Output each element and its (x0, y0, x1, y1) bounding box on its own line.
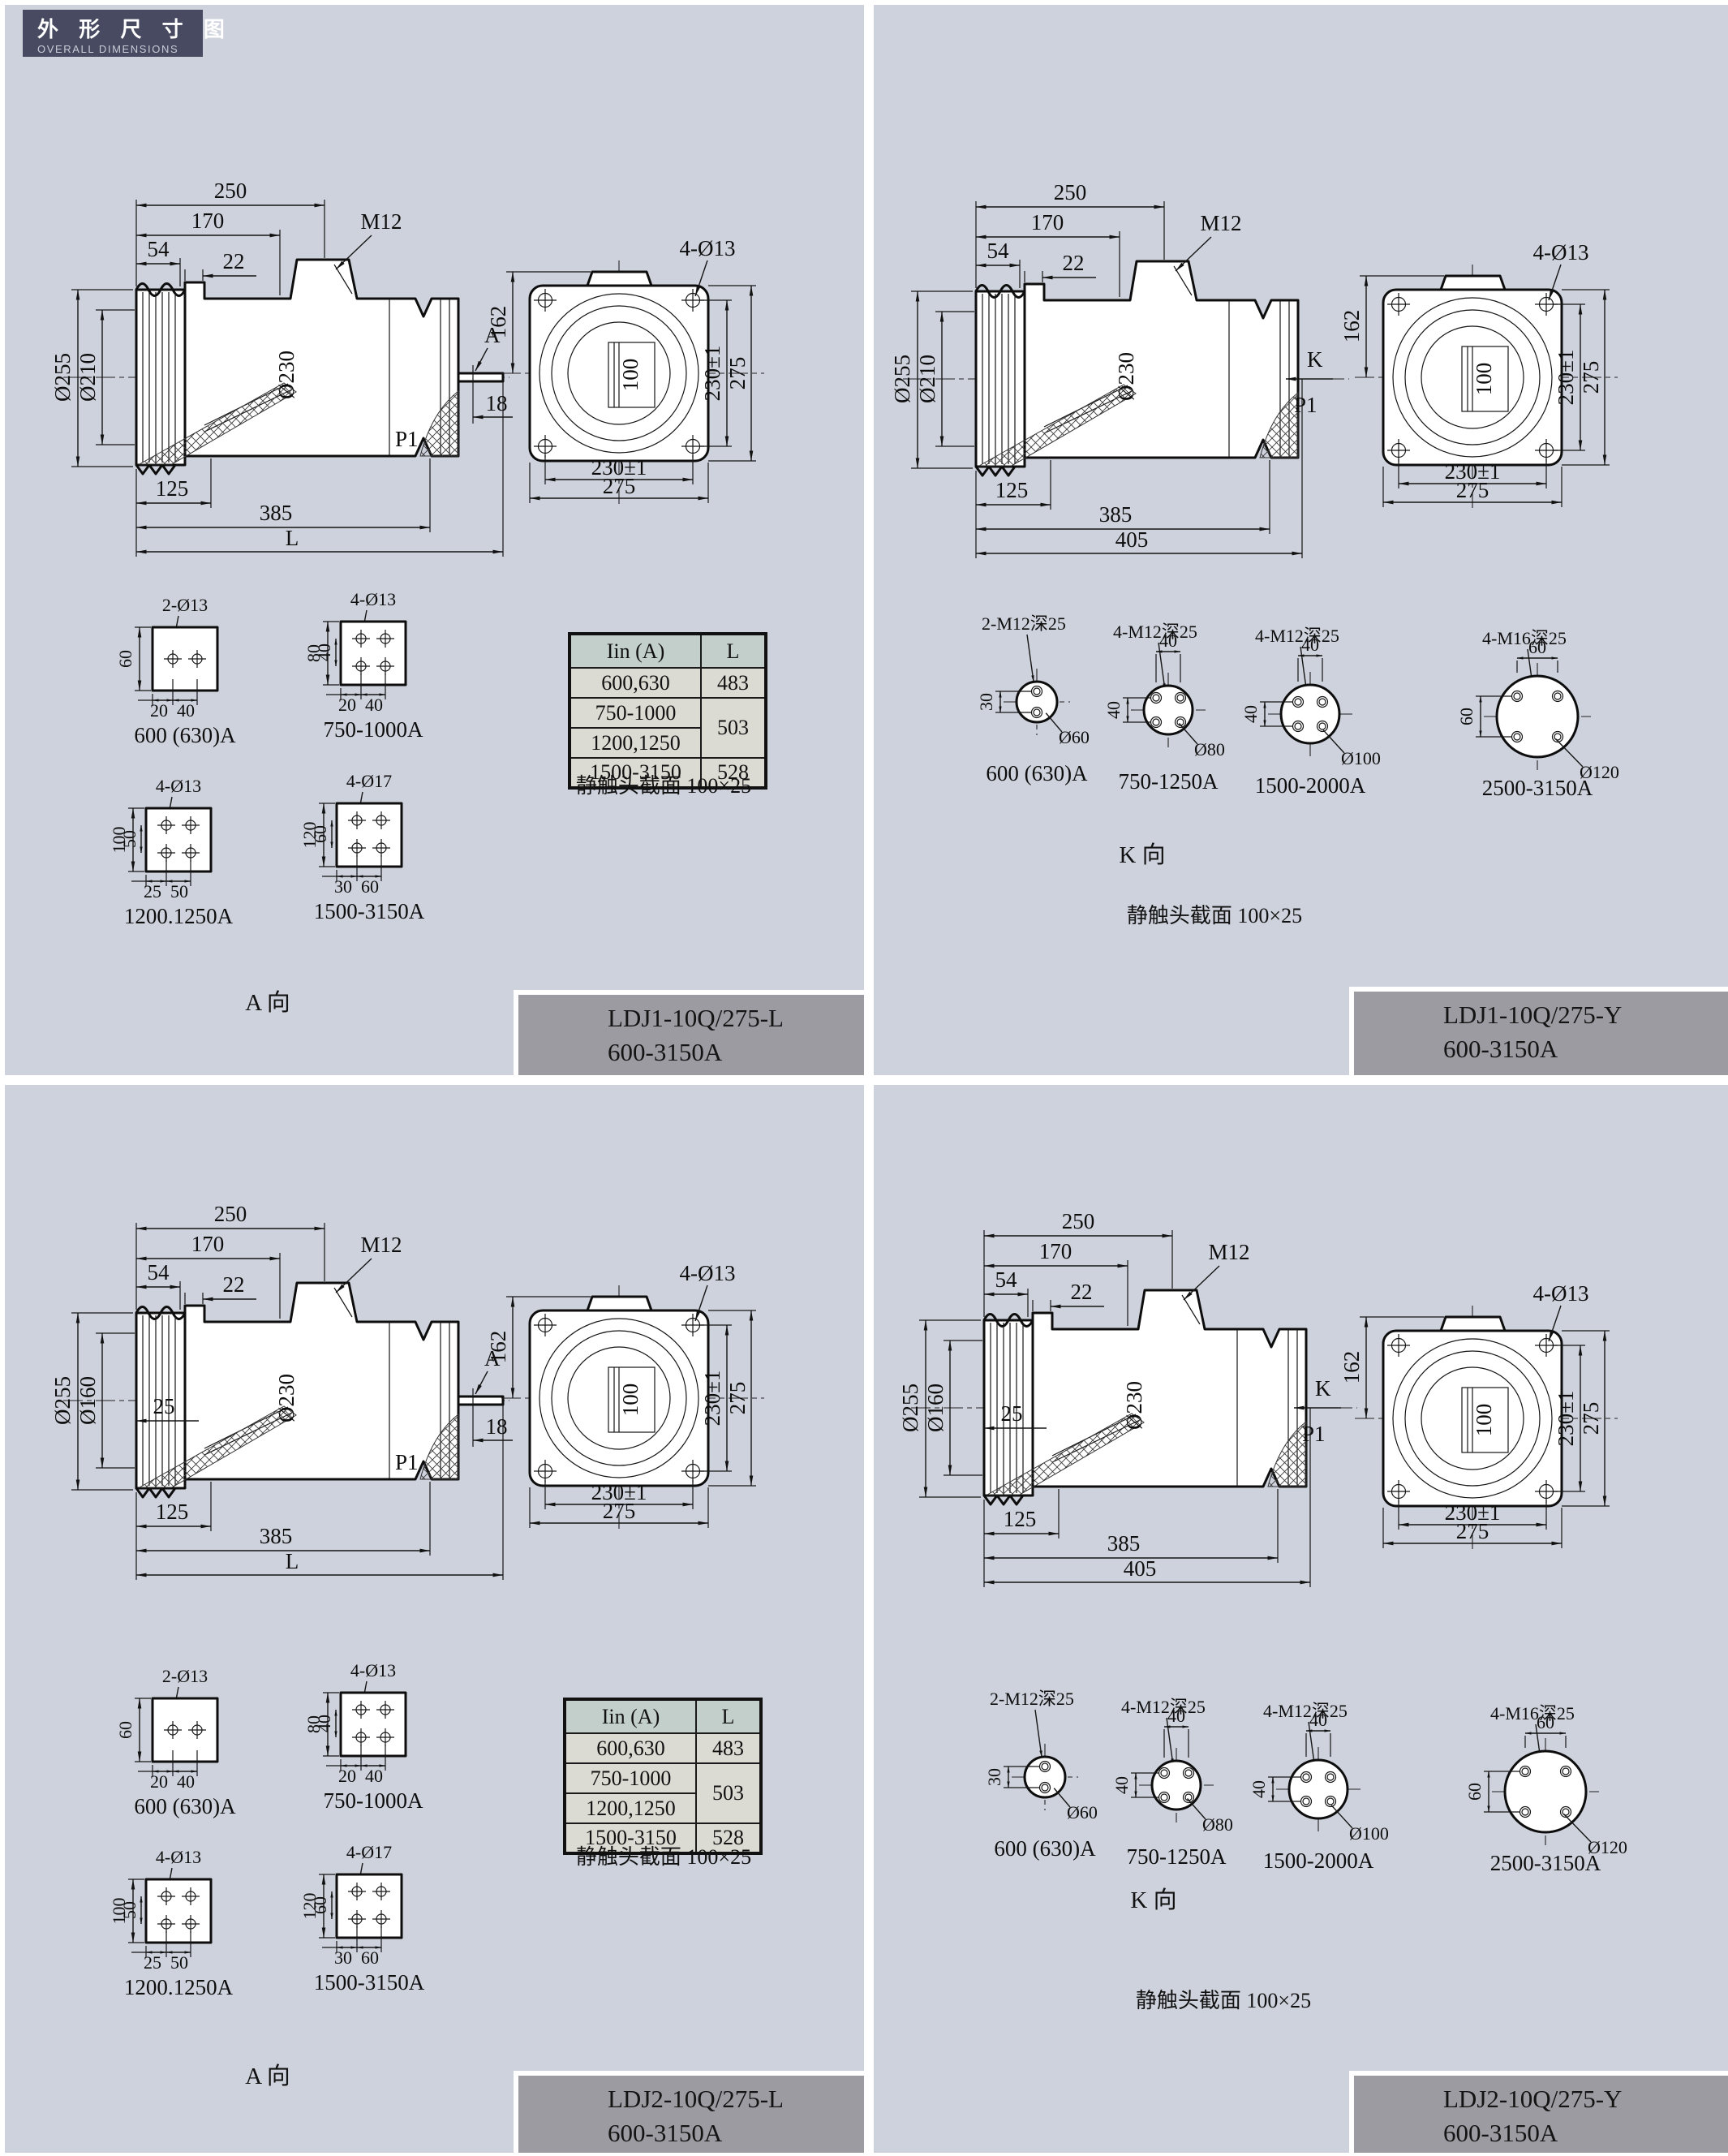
dim-275-right: 275 (1579, 1402, 1603, 1435)
thread-label-m12: M12 (1208, 1240, 1249, 1264)
pattern-title: 4-Ø13 (350, 1660, 396, 1680)
dim-left: 60 (1464, 1783, 1485, 1801)
dim-54: 54 (148, 1260, 170, 1285)
front-view-host-tl: 100 162 4-Ø13 230±1 275 230±1 275 (495, 239, 771, 511)
dim-left: 40 (1240, 705, 1261, 723)
view-caption-a: A 向 (245, 2057, 290, 2091)
table-cell: 600,630 (565, 1733, 696, 1763)
table-cell: 1200,1250 (570, 728, 701, 758)
table-cell: 1200,1250 (565, 1793, 696, 1823)
circle-pattern-host: 4-M12深25 40 40 Ø80 750-1250A (1095, 1700, 1257, 1870)
dim-170: 170 (191, 1232, 225, 1256)
pattern-current-label: 600 (630)A (134, 723, 236, 747)
dim-162: 162 (1339, 310, 1364, 343)
dim-bot1: 20 (338, 695, 356, 715)
dim-dia-body: Ø230 (274, 351, 299, 399)
dim-54: 54 (148, 237, 170, 261)
dim-outer-v: 60 (115, 650, 135, 668)
dim-dia: Ø60 (1059, 727, 1090, 747)
dim-230-right: 230±1 (1554, 1391, 1578, 1447)
diameter-label: Ø100 (1323, 730, 1381, 768)
bolt-pattern-plate: 4-Ø13 40 80 20 40 750-1000A (292, 1662, 434, 1828)
dim-230-right: 230±1 (700, 346, 724, 402)
holes-label: 4-Ø13 (680, 236, 736, 260)
pattern-current-label: 2500-3150A (1490, 1851, 1601, 1875)
model-name: LDJ2-10Q/275-Y (1443, 2082, 1728, 2116)
dim-250: 250 (1062, 1209, 1095, 1233)
dim-bot1: 30 (334, 876, 352, 897)
circle-pattern-host: 4-M12深25 40 40 Ø80 750-1250A (1087, 625, 1249, 795)
dim-top: 40 (1167, 1706, 1185, 1726)
model-name: LDJ1-10Q/275-Y (1443, 998, 1728, 1032)
contact-circle (1505, 1751, 1586, 1832)
bolt-pattern-host: 4-Ø13 50 100 25 50 1200.1250A (97, 1848, 239, 2015)
dim-outer-v: 100 (109, 827, 129, 854)
plate-outline (341, 622, 406, 685)
static-contact-note: 静触头截面 100×25 (1127, 899, 1302, 929)
diameter-label: Ø100 (1331, 1805, 1389, 1844)
pattern-current-label: 750-1250A (1119, 769, 1219, 794)
dim-162: 162 (1339, 1351, 1364, 1384)
dim-top: 40 (1159, 630, 1177, 651)
dim-dia-inner: Ø160 (923, 1384, 948, 1432)
pattern-current-label: 1500-3150A (314, 1970, 425, 1995)
dim-250: 250 (1054, 180, 1087, 204)
side-view-drawing: 250 170 54 22 M12 Ø255 Ø160 Ø230 25 125 … (896, 1128, 1367, 1594)
dim-22: 22 (1071, 1280, 1093, 1304)
dim-275-bottom: 275 (603, 1499, 636, 1523)
dim-275-bottom: 275 (1456, 478, 1489, 502)
dim-bot1: 20 (150, 1771, 168, 1792)
dim-22: 22 (1063, 251, 1085, 275)
front-view-host-bl: 100 162 4-Ø13 230±1 275 230±1 275 (495, 1264, 771, 1536)
pattern-current-label: 2500-3150A (1482, 776, 1593, 800)
dim-22: 22 (223, 1272, 245, 1297)
table-cell: 600,630 (570, 668, 701, 698)
contact-circle (1289, 1760, 1348, 1818)
dim-100: 100 (1472, 363, 1496, 396)
dim-275-right: 275 (725, 357, 750, 390)
plane-p1: P1 (1294, 393, 1317, 417)
plate-outline (341, 1693, 406, 1756)
model-label-bl: LDJ2-10Q/275-L 600-3150A (514, 2071, 864, 2153)
dim-left: 40 (1103, 701, 1124, 719)
dim-100: 100 (618, 1384, 643, 1417)
pattern-current-label: 750-1250A (1127, 1844, 1227, 1869)
bolt-pattern-host: 4-Ø17 60 120 30 60 1500-3150A (288, 1844, 430, 2010)
pattern-title: 4-Ø13 (156, 1847, 201, 1867)
dimension-table: Iin (A) L 600,630483 750-1000503 1200,12… (568, 632, 767, 790)
model-range: 600-3150A (608, 2116, 864, 2150)
pattern-current-label: 600 (630)A (134, 1794, 236, 1818)
model-label-br: LDJ2-10Q/275-Y 600-3150A (1349, 2071, 1728, 2153)
dim-125: 125 (156, 1500, 189, 1524)
dim-250: 250 (214, 179, 247, 203)
table-cell: 503 (696, 1763, 761, 1823)
dim-275-bottom: 275 (603, 474, 636, 498)
dim-left: 40 (1249, 1780, 1269, 1798)
dim-170: 170 (191, 209, 225, 233)
pattern-current-label: 750-1000A (324, 1788, 423, 1813)
table-header-length: L (722, 1705, 735, 1728)
front-view-drawing: 100 162 4-Ø13 230±1 275 230±1 275 (495, 239, 771, 511)
thread-label-m12: M12 (1200, 211, 1241, 235)
dim-dia-body: Ø230 (1122, 1381, 1146, 1430)
view-caption-k: K 向 (1130, 1881, 1176, 1915)
bolt-pattern-plate: 2-Ø13 60 20 40 600 (630)A (104, 596, 246, 763)
holes-label: 4-Ø13 (680, 1261, 736, 1285)
bolt-pattern-host: 2-Ø13 60 20 40 600 (630)A (104, 1668, 246, 1834)
dim-54: 54 (987, 239, 1010, 263)
pattern-title: 4-Ø13 (156, 776, 201, 796)
circle-pattern-host: 4-M12深25 40 40 Ø100 1500-2000A (1229, 629, 1391, 799)
model-label-tl: LDJ1-10Q/275-L 600-3150A (514, 990, 864, 1075)
dim-top: 40 (1301, 635, 1319, 655)
bolt-pattern-plate: 4-Ø17 60 120 30 60 1500-3150A (288, 1844, 430, 2010)
bolt-pattern-plate: 4-Ø13 50 100 25 50 1200.1250A (97, 1848, 239, 2015)
holes-label: 4-Ø13 (1533, 240, 1589, 265)
pattern-current-label: 1500-2000A (1255, 773, 1366, 798)
dim-dia: Ø60 (1067, 1802, 1098, 1822)
model-range: 600-3150A (1443, 2116, 1728, 2150)
bolt-pattern-host: 4-Ø17 60 120 30 60 1500-3150A (288, 772, 430, 939)
dim-dia-body: Ø230 (1114, 352, 1138, 401)
thread-label-m12: M12 (360, 209, 402, 234)
model-label-tr: LDJ1-10Q/275-Y 600-3150A (1349, 987, 1728, 1075)
side-view-host-br: 250 170 54 22 M12 Ø255 Ø160 Ø230 25 125 … (896, 1128, 1367, 1594)
dim-bot1: 30 (334, 1947, 352, 1968)
thread-label-m12: M12 (360, 1233, 402, 1257)
dim-outer-v: 60 (115, 1721, 135, 1739)
dim-length: 405 (1115, 527, 1149, 552)
dim-125: 125 (995, 478, 1029, 502)
pattern-title: 2-M12深25 (990, 1689, 1074, 1709)
dim-100: 100 (618, 359, 643, 392)
dim-dia-inner: Ø210 (915, 355, 939, 403)
contact-circle (1281, 685, 1339, 743)
page-title-cn: 外 形 尺 寸 图 (37, 13, 203, 43)
circular-contact-pattern: 4-M16深25 60 60 Ø120 2500-3150A (1464, 1706, 1627, 1877)
contact-circle (1144, 686, 1193, 734)
dim-bot2: 60 (361, 1947, 379, 1968)
pattern-title: 4-M16深25 (1490, 1703, 1575, 1724)
front-view-drawing: 100 162 4-Ø13 230±1 275 230±1 275 (495, 1264, 771, 1536)
circle-pattern-host: 4-M12深25 40 40 Ø100 1500-2000A (1237, 1704, 1399, 1874)
dim-bot2: 40 (177, 1771, 195, 1792)
model-range: 600-3150A (608, 1035, 864, 1069)
side-view-host-tr: 250 170 54 22 M12 Ø255 Ø210 Ø230 125 385… (888, 99, 1359, 566)
dim-dia: Ø100 (1341, 748, 1381, 768)
circular-contact-pattern: 4-M12深25 40 40 Ø100 1500-2000A (1229, 629, 1391, 799)
dim-dia: Ø80 (1202, 1814, 1233, 1835)
model-name: LDJ2-10Q/275-L (608, 2082, 864, 2116)
dim-100: 100 (1472, 1404, 1496, 1437)
dim-230-right: 230±1 (1554, 350, 1578, 406)
page-header: 外 形 尺 寸 图 OVERALL DIMENSIONS (23, 10, 203, 57)
dim-275-right: 275 (725, 1382, 750, 1415)
pattern-title: 2-M12深25 (982, 613, 1066, 634)
pattern-title: 4-Ø17 (346, 771, 392, 791)
dim-275-right: 275 (1579, 361, 1603, 394)
front-view-host-tr: 100 162 4-Ø13 230±1 275 230±1 275 (1348, 243, 1624, 515)
dim-left: 40 (1111, 1776, 1132, 1794)
diameter-label: Ø80 (1188, 1799, 1233, 1835)
view-caption-k: K 向 (1119, 836, 1165, 870)
side-view-host-tl: 250 170 54 22 M12 Ø255 Ø210 Ø230 125 385… (49, 97, 519, 564)
dim-250: 250 (214, 1202, 247, 1226)
bolt-pattern-host: 4-Ø13 50 100 25 50 1200.1250A (97, 777, 239, 944)
dim-170: 170 (1039, 1239, 1072, 1263)
dim-outer-v: 80 (303, 1715, 324, 1733)
table-header-current: Iin (A) (602, 1705, 660, 1728)
dim-170: 170 (1031, 210, 1064, 235)
front-view-drawing: 100 162 4-Ø13 230±1 275 230±1 275 (1348, 1285, 1624, 1556)
dim-dia-outer: Ø255 (50, 1376, 75, 1425)
dim-outer-v: 120 (299, 822, 320, 849)
pattern-title: 4-M16深25 (1482, 628, 1567, 648)
plane-p1: P1 (395, 1450, 419, 1474)
plate-outline (146, 1879, 211, 1943)
view-caption-a: A 向 (245, 983, 290, 1018)
dim-dia-outer: Ø255 (890, 355, 914, 403)
dim-54: 54 (995, 1267, 1018, 1292)
plane-p1: P1 (395, 427, 419, 451)
model-name: LDJ1-10Q/275-L (608, 1001, 864, 1035)
dim-dia-outer: Ø255 (50, 353, 75, 402)
dim-bot1: 25 (144, 881, 161, 902)
table-cell: 483 (696, 1733, 761, 1763)
dim-125: 125 (1004, 1507, 1037, 1531)
dim-length: 405 (1124, 1556, 1157, 1581)
dim-bot2: 50 (170, 881, 188, 902)
table-header-current: Iin (A) (607, 639, 664, 663)
dim-dia: Ø80 (1194, 739, 1225, 760)
dim-dia-inner: Ø160 (75, 1376, 100, 1425)
plate-outline (337, 1874, 402, 1938)
table-cell: 503 (701, 698, 766, 758)
bolt-pattern-host: 4-Ø13 40 80 20 40 750-1000A (292, 591, 434, 757)
dim-dia: Ø100 (1349, 1823, 1389, 1844)
front-view-drawing: 100 162 4-Ø13 230±1 275 230±1 275 (1348, 243, 1624, 515)
bolt-pattern-host: 4-Ø13 40 80 20 40 750-1000A (292, 1662, 434, 1828)
dim-bot1: 20 (338, 1766, 356, 1786)
dim-22: 22 (223, 249, 245, 273)
bolt-pattern-host: 2-Ø13 60 20 40 600 (630)A (104, 596, 246, 763)
pattern-title: 4-Ø17 (346, 1842, 392, 1862)
circle-pattern-host: 4-M16深25 60 60 Ø120 2500-3150A (1464, 1706, 1627, 1877)
dim-bot1: 20 (150, 700, 168, 721)
dim-bot2: 40 (177, 700, 195, 721)
dim-left: 30 (976, 693, 996, 711)
pattern-title: 2-Ø13 (162, 1666, 208, 1686)
plate-outline (146, 808, 211, 871)
side-view-drawing: 250 170 54 22 M12 Ø255 Ø160 Ø230 25 125 … (49, 1121, 519, 1587)
dim-385: 385 (260, 501, 293, 525)
plate-outline (153, 627, 217, 691)
view-letter-k: K (1315, 1376, 1331, 1401)
dim-length: L (286, 1549, 299, 1573)
dim-top: 40 (1309, 1710, 1327, 1730)
dim-bot2: 50 (170, 1952, 188, 1973)
dim-385: 385 (1107, 1531, 1141, 1556)
dim-230-right: 230±1 (700, 1371, 724, 1427)
dim-25: 25 (153, 1394, 175, 1418)
front-view-host-br: 100 162 4-Ø13 230±1 275 230±1 275 (1348, 1285, 1624, 1556)
static-contact-note: 静触头截面 100×25 (576, 769, 751, 799)
dimension-table: Iin (A) L 600,630483 750-1000503 1200,12… (563, 1698, 763, 1855)
dim-outer-v: 80 (303, 644, 324, 662)
table-cell: 750-1000 (570, 698, 701, 728)
pattern-title: 4-M12深25 (1113, 622, 1197, 642)
dim-25: 25 (1001, 1401, 1023, 1426)
holes-label: 4-Ø13 (1533, 1281, 1589, 1306)
pattern-current-label: 1200.1250A (124, 1975, 234, 1999)
side-view-drawing: 250 170 54 22 M12 Ø255 Ø210 Ø230 125 385… (888, 99, 1359, 566)
table-cell: 483 (701, 668, 766, 698)
circular-contact-pattern: 4-M16深25 60 60 Ø120 2500-3150A (1456, 631, 1618, 802)
pattern-current-label: 600 (630)A (986, 761, 1088, 785)
dim-top: 60 (1528, 637, 1546, 657)
dim-dia-outer: Ø255 (898, 1384, 922, 1432)
side-view-drawing: 250 170 54 22 M12 Ø255 Ø210 Ø230 125 385… (49, 97, 519, 564)
model-range: 600-3150A (1443, 1032, 1728, 1066)
dim-bot2: 40 (365, 1766, 383, 1786)
dim-left: 60 (1456, 708, 1477, 725)
bolt-pattern-plate: 4-Ø13 50 100 25 50 1200.1250A (97, 777, 239, 944)
circular-contact-pattern: 4-M12深25 40 40 Ø100 1500-2000A (1237, 1704, 1399, 1874)
plate-outline (153, 1698, 217, 1762)
dim-bot1: 25 (144, 1952, 161, 1973)
dim-162: 162 (486, 1331, 510, 1364)
circle-pattern-host: 4-M16深25 60 60 Ø120 2500-3150A (1456, 631, 1618, 802)
dim-dia-body: Ø230 (274, 1374, 299, 1422)
pattern-title: 4-Ø13 (350, 589, 396, 609)
dim-left: 30 (984, 1768, 1004, 1786)
static-contact-note: 静触头截面 100×25 (1136, 1984, 1311, 2014)
pattern-title: 2-Ø13 (162, 595, 208, 615)
dim-outer-v: 120 (299, 1893, 320, 1920)
dim-385: 385 (1099, 502, 1133, 527)
pattern-current-label: 600 (630)A (994, 1836, 1096, 1861)
dim-385: 385 (260, 1524, 293, 1548)
plate-outline (337, 803, 402, 867)
contact-circle (1497, 676, 1578, 757)
dim-bot2: 40 (365, 695, 383, 715)
page-title-en: OVERALL DIMENSIONS (37, 43, 203, 55)
table-cell: 750-1000 (565, 1763, 696, 1793)
diameter-label: Ø60 (1054, 1788, 1098, 1822)
dim-outer-v: 100 (109, 1898, 129, 1925)
side-view-host-bl: 250 170 54 22 M12 Ø255 Ø160 Ø230 25 125 … (49, 1121, 519, 1587)
dim-length: L (286, 526, 299, 550)
pattern-current-label: 1500-2000A (1263, 1848, 1374, 1873)
pattern-current-label: 1200.1250A (124, 904, 234, 928)
dim-top: 60 (1537, 1712, 1554, 1732)
pattern-title: 4-M12深25 (1121, 1697, 1206, 1717)
view-letter-k: K (1307, 347, 1323, 372)
pattern-current-label: 750-1000A (324, 717, 423, 742)
dim-bot2: 60 (361, 876, 379, 897)
bolt-pattern-plate: 4-Ø17 60 120 30 60 1500-3150A (288, 772, 430, 939)
bolt-pattern-plate: 4-Ø13 40 80 20 40 750-1000A (292, 591, 434, 757)
pattern-title: 4-M12深25 (1255, 626, 1339, 646)
circular-contact-pattern: 4-M12深25 40 40 Ø80 750-1250A (1087, 625, 1249, 795)
dim-dia-inner: Ø210 (75, 353, 100, 402)
diameter-label: Ø60 (1046, 713, 1090, 747)
contact-circle (1152, 1761, 1201, 1810)
dim-275-bottom: 275 (1456, 1519, 1489, 1543)
diameter-label: Ø80 (1180, 724, 1225, 760)
pattern-title: 4-M12深25 (1263, 1701, 1348, 1721)
plane-p1: P1 (1302, 1422, 1326, 1446)
table-header-length: L (727, 639, 740, 663)
dim-162: 162 (486, 306, 510, 339)
circular-contact-pattern: 4-M12深25 40 40 Ø80 750-1250A (1095, 1700, 1257, 1870)
static-contact-note: 静触头截面 100×25 (576, 1840, 751, 1870)
dim-125: 125 (156, 476, 189, 501)
bolt-pattern-plate: 2-Ø13 60 20 40 600 (630)A (104, 1668, 246, 1834)
pattern-current-label: 1500-3150A (314, 899, 425, 923)
